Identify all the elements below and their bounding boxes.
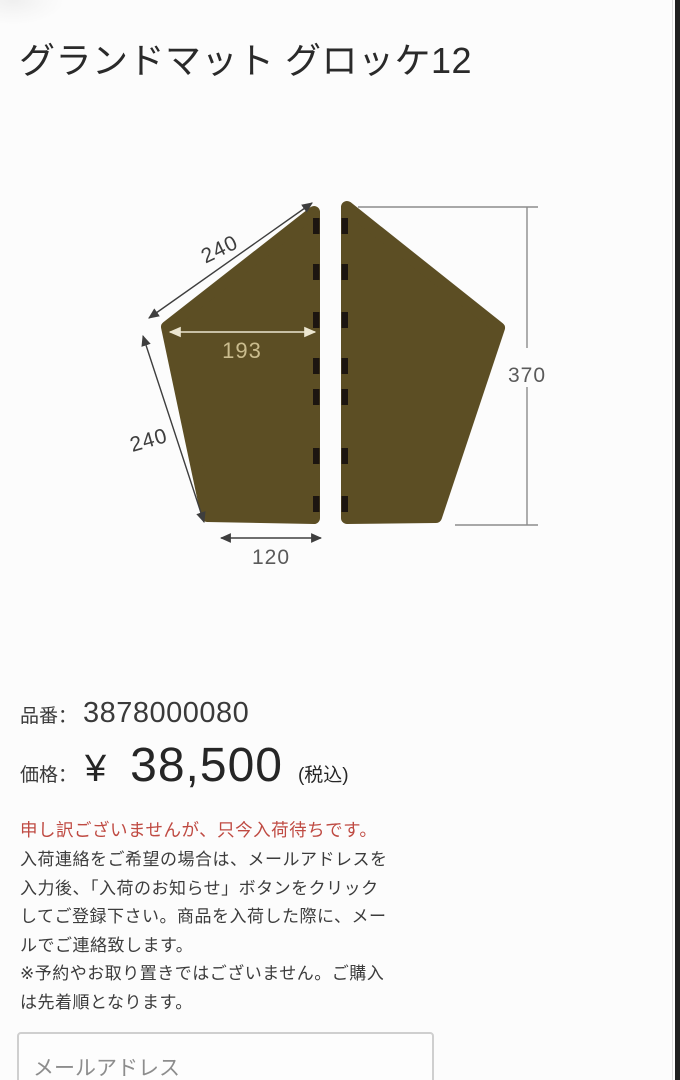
dimension-diagram: 240 240 193 120 370	[0, 150, 680, 590]
tax-note: (税込)	[298, 765, 349, 786]
mat-left-half	[167, 212, 314, 518]
screen-right-edge	[675, 0, 680, 1080]
currency-symbol: ¥	[85, 748, 106, 790]
mat-right-half	[347, 207, 499, 518]
product-page: グランドマット グロッケ12 240	[0, 0, 680, 1080]
dim-label-left-edge: 240	[127, 424, 170, 457]
stock-description: 入荷連絡をご希望の場合は、メールアドレスを 入力後、「入荷のお知らせ」ボタンをク…	[20, 846, 480, 960]
stock-alert: 申し訳ございませんが、只今入荷待ちです。	[20, 817, 377, 842]
dim-label-inner-width: 193	[222, 338, 262, 363]
price-value: 38,500	[130, 739, 283, 792]
price-label: 価格：	[20, 765, 77, 786]
price-row: 価格：¥38,500(税込)	[20, 738, 349, 793]
dim-label-top-edge: 240	[198, 231, 242, 268]
dim-label-bottom-edge: 120	[252, 546, 290, 569]
center-hole	[320, 372, 341, 393]
product-code-label: 品番：	[20, 706, 77, 727]
product-title: グランドマット グロッケ12	[19, 32, 472, 84]
product-code-row: 品番：3878000080	[20, 697, 249, 730]
dim-label-height: 370	[508, 364, 546, 387]
photo-artifact	[0, 0, 62, 24]
email-input[interactable]	[17, 1032, 434, 1080]
stock-note: ※予約やお取り置きではございません。ご購入 は先着順となります。	[20, 960, 480, 1017]
product-code-value: 3878000080	[83, 697, 249, 729]
